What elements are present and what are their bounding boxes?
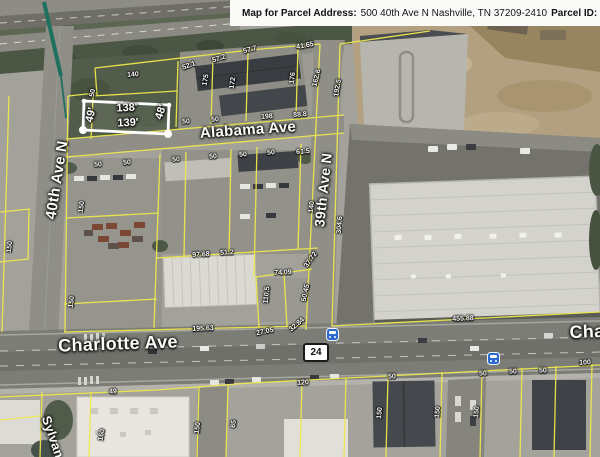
header-address: 500 40th Ave N Nashville, TN 37209-2410 <box>361 8 547 19</box>
map-header: Map for Parcel Address: 500 40th Ave N N… <box>230 0 600 26</box>
aerial-basemap <box>0 0 600 457</box>
warehouse-parcel <box>336 124 600 334</box>
header-parcel-id-label: Parcel ID: <box>551 8 597 19</box>
bus-stop-icon <box>327 329 338 340</box>
parcel-map-canvas[interactable]: 40th Ave NAlabama Ave39th Ave NCharlotte… <box>0 0 600 457</box>
highway-shield: 24 <box>303 343 329 362</box>
bus-stop-icon <box>488 353 499 364</box>
header-map-label: Map for Parcel Address: <box>242 8 357 19</box>
highway-shield-route: 24 <box>310 347 321 358</box>
